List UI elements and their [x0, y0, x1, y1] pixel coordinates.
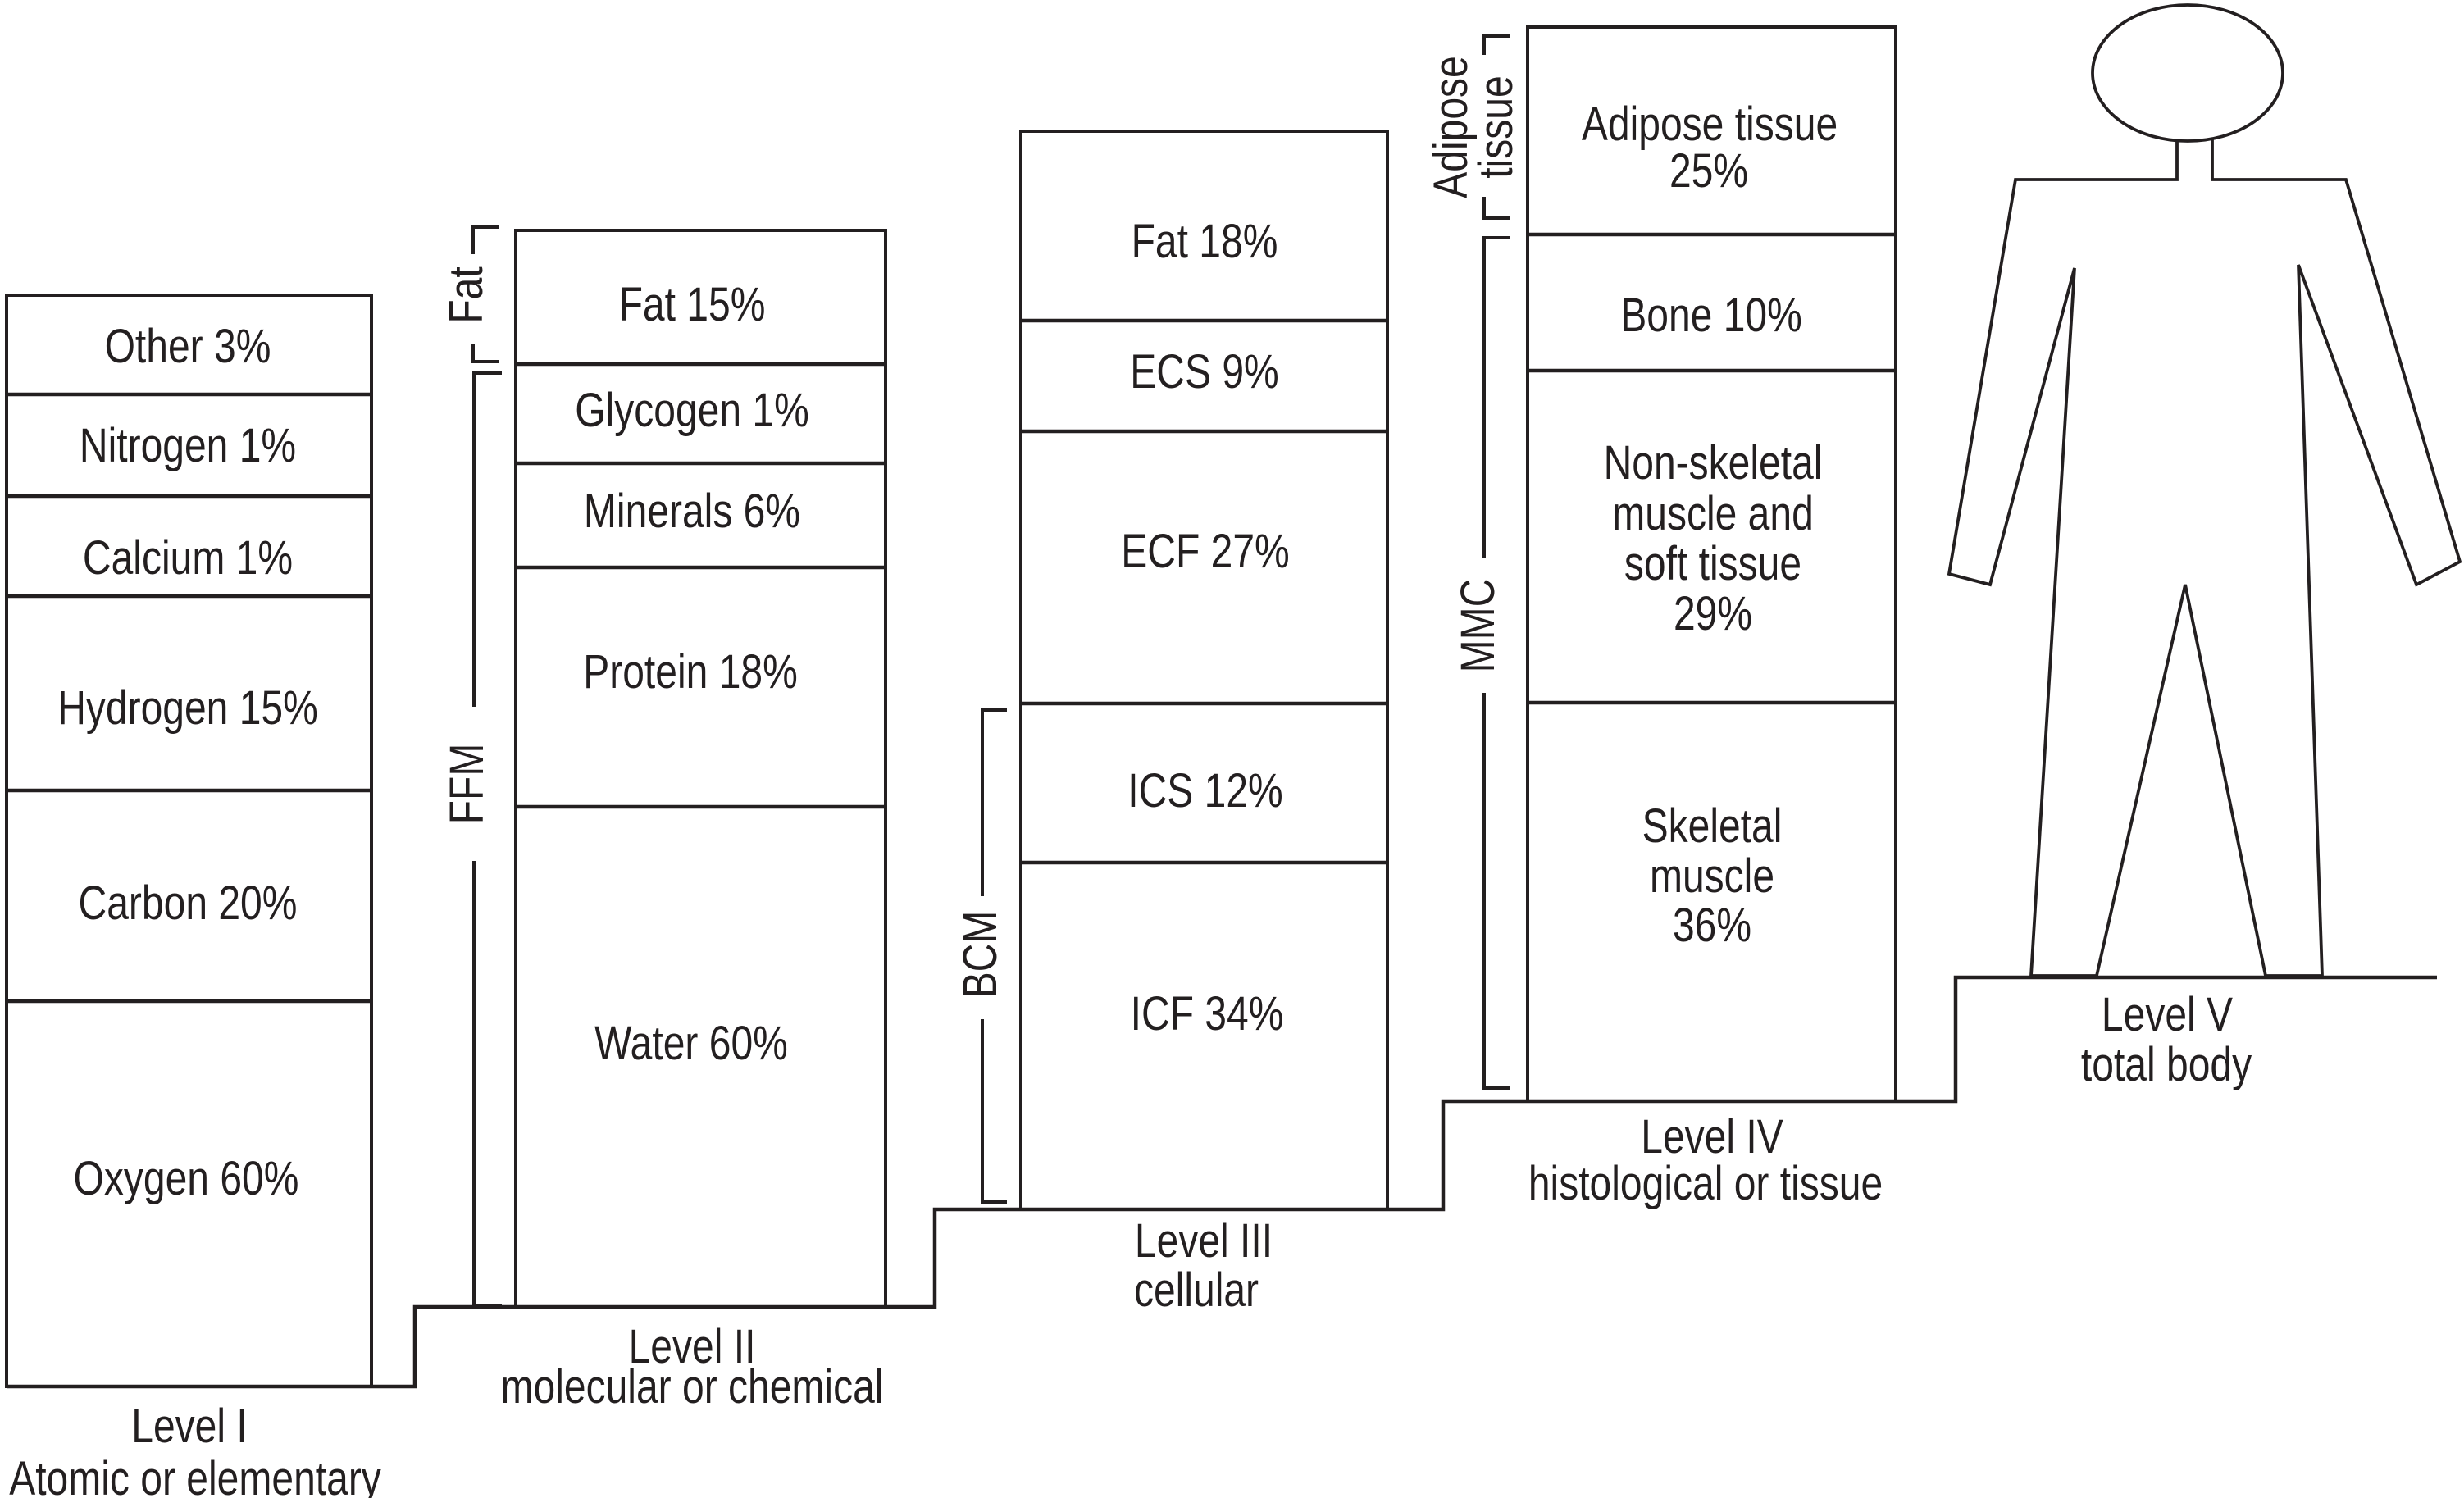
svg-text:molecular or chemical: molecular or chemical: [501, 1361, 884, 1414]
svg-text:tissue: tissue: [1470, 75, 1523, 178]
svg-text:Glycogen 1%: Glycogen 1%: [575, 385, 809, 437]
svg-text:Adipose tissue: Adipose tissue: [1582, 98, 1838, 151]
svg-text:29%: 29%: [1674, 588, 1752, 640]
svg-text:histological or tissue: histological or tissue: [1528, 1158, 1883, 1210]
svg-text:FFM: FFM: [441, 744, 494, 825]
svg-text:Protein 18%: Protein 18%: [583, 646, 798, 699]
svg-text:Nitrogen 1%: Nitrogen 1%: [80, 420, 296, 472]
svg-text:Minerals 6%: Minerals 6%: [584, 485, 800, 538]
svg-text:ICF 34%: ICF 34%: [1131, 988, 1284, 1040]
svg-text:Water 60%: Water 60%: [594, 1018, 788, 1070]
svg-text:Hydrogen 15%: Hydrogen 15%: [57, 682, 318, 735]
svg-text:Fat 18%: Fat 18%: [1132, 216, 1278, 268]
svg-text:Carbon 20%: Carbon 20%: [79, 877, 298, 930]
svg-text:Fat: Fat: [440, 266, 493, 324]
svg-text:36%: 36%: [1673, 899, 1751, 952]
svg-text:BCM: BCM: [954, 911, 1007, 999]
svg-text:Oxygen 60%: Oxygen 60%: [74, 1153, 299, 1205]
svg-text:Level V: Level V: [2102, 989, 2234, 1041]
svg-text:Level III: Level III: [1135, 1215, 1273, 1268]
svg-text:soft tissue: soft tissue: [1624, 538, 1801, 590]
svg-text:muscle and: muscle and: [1612, 488, 1814, 540]
svg-text:Calcium 1%: Calcium 1%: [83, 532, 293, 585]
svg-text:muscle: muscle: [1650, 850, 1774, 903]
svg-text:Atomic or elementary: Atomic or elementary: [9, 1453, 381, 1498]
svg-text:ECS 9%: ECS 9%: [1130, 346, 1278, 398]
svg-text:Non-skeletal: Non-skeletal: [1604, 437, 1823, 489]
svg-text:25%: 25%: [1669, 145, 1748, 198]
svg-text:Level IV: Level IV: [1641, 1111, 1783, 1163]
svg-text:Fat 15%: Fat 15%: [619, 279, 766, 331]
svg-text:total body: total body: [2081, 1039, 2252, 1091]
svg-text:Other 3%: Other 3%: [105, 321, 271, 373]
svg-text:Skeletal: Skeletal: [1642, 800, 1783, 853]
svg-text:ECF 27%: ECF 27%: [1121, 526, 1289, 578]
svg-text:Bone 10%: Bone 10%: [1620, 289, 1802, 342]
svg-text:MMC: MMC: [1452, 579, 1505, 673]
svg-text:ICS 12%: ICS 12%: [1127, 765, 1282, 817]
svg-text:cellular: cellular: [1134, 1264, 1259, 1317]
svg-text:Level I: Level I: [131, 1400, 247, 1453]
